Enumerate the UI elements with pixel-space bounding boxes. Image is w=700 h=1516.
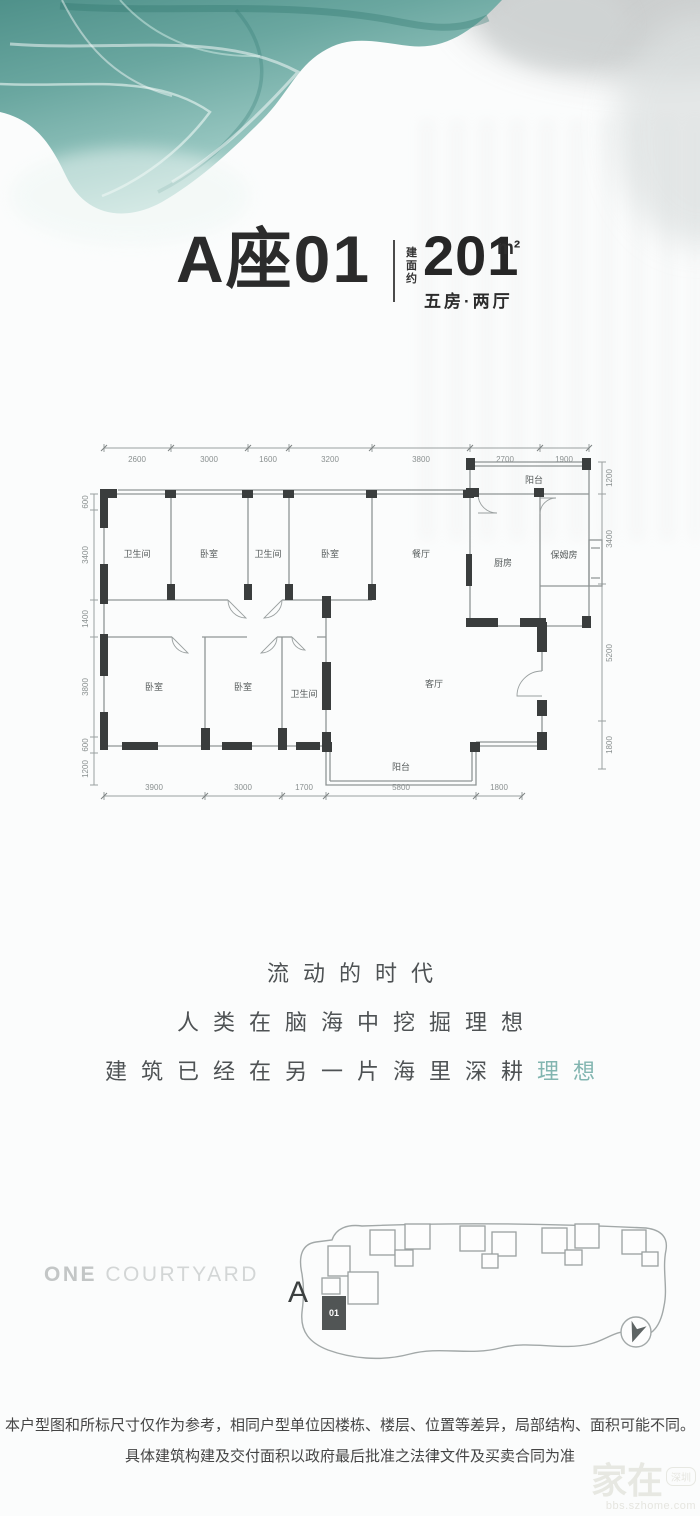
room-balcony-top: 阳台 (525, 474, 543, 485)
dim-left-2: 1400 (82, 610, 90, 628)
watermark-badge: 深圳 (666, 1467, 696, 1486)
unit-badge: 01 (329, 1308, 339, 1318)
dim-left-3: 3800 (82, 678, 90, 696)
dim-left-4: 600 (82, 738, 90, 752)
dim-left-5: 1200 (82, 760, 90, 778)
dim-bottom-3: 5800 (392, 783, 410, 792)
room-bedroom-4: 卧室 (234, 681, 252, 692)
dim-top-4: 3800 (412, 455, 430, 464)
room-bath-3: 卫生间 (290, 688, 317, 699)
floorplan-door-arcs (172, 494, 556, 696)
layout-rooms-text: 五房·两厅 (424, 287, 513, 312)
room-bedroom-1: 卧室 (200, 548, 218, 559)
dim-left-0: 600 (82, 495, 90, 509)
room-bath-1: 卫生间 (123, 548, 150, 559)
area-label-vertical: 建面约 (406, 247, 419, 286)
dim-right-3: 1800 (605, 736, 614, 754)
dim-bottom-2: 1700 (295, 783, 313, 792)
watermark-text: 家在 (591, 1463, 663, 1499)
room-living: 客厅 (425, 678, 443, 689)
slogan-line-1: 流动的时代 (0, 956, 700, 988)
siteplan-diagram: 01 A (30, 1212, 680, 1382)
room-balcony-bottom: 阳台 (392, 761, 410, 772)
watermark-url: bbs.szhome.com (591, 1500, 696, 1512)
room-bedroom-2: 卧室 (321, 548, 339, 559)
floorplan-diagram: 2600 3000 1600 3200 3800 2700 1900 3900 … (82, 436, 620, 810)
room-kitchen: 厨房 (494, 557, 512, 568)
dim-top-2: 1600 (259, 455, 277, 464)
title-divider (393, 240, 395, 302)
dim-top-3: 3200 (321, 455, 339, 464)
siteplan-buildings (322, 1224, 658, 1304)
area-unit: m² (497, 238, 520, 260)
room-bath-2: 卫生间 (254, 548, 281, 559)
dim-right-2: 5200 (605, 644, 614, 662)
dim-right-1: 3400 (605, 530, 614, 548)
poster-page: A座01 建面约 201 m² 五房·两厅 2600 3000 1600 (0, 0, 700, 1516)
floorplan-walls-thick (100, 458, 591, 752)
watermark: 家在 深圳 bbs.szhome.com (591, 1463, 696, 1512)
dim-right-0: 1200 (605, 469, 614, 487)
dim-bottom-0: 3900 (145, 783, 163, 792)
dim-top-1: 3000 (200, 455, 218, 464)
disclaimer-line-1: 本户型图和所标尺寸仅作为参考，相同户型单位因楼栋、楼层、位置等差异，局部结构、面… (0, 1410, 700, 1441)
slogan-line-2: 人类在脑海中挖掘理想 (0, 1005, 700, 1037)
slogan-line-3-prefix: 建筑已经在另一片海里深耕 (105, 1059, 537, 1084)
dim-top-0: 2600 (128, 455, 146, 464)
unit-title: A座01 (176, 226, 371, 292)
room-maid: 保姆房 (550, 549, 577, 560)
siteplan-unit-01: 01 (322, 1296, 346, 1330)
floorplan-room-labels: 卫生间 卧室 卫生间 卧室 餐厅 阳台 厨房 保姆房 卧室 卧室 卫生间 客厅 … (123, 474, 577, 772)
room-bedroom-3: 卧室 (145, 681, 163, 692)
dim-bottom-4: 1800 (490, 783, 508, 792)
dim-left-1: 3400 (82, 546, 90, 564)
dim-bottom-1: 3000 (234, 783, 252, 792)
room-dining: 餐厅 (412, 548, 430, 559)
slogan-block: 流动的时代 人类在脑海中挖掘理想 建筑已经在另一片海里深耕理想 (0, 956, 700, 1103)
compass-icon (621, 1317, 651, 1347)
block-label: A (288, 1276, 308, 1309)
slogan-line-3-accent: 理想 (537, 1059, 609, 1084)
slogan-line-3: 建筑已经在另一片海里深耕理想 (0, 1054, 700, 1086)
